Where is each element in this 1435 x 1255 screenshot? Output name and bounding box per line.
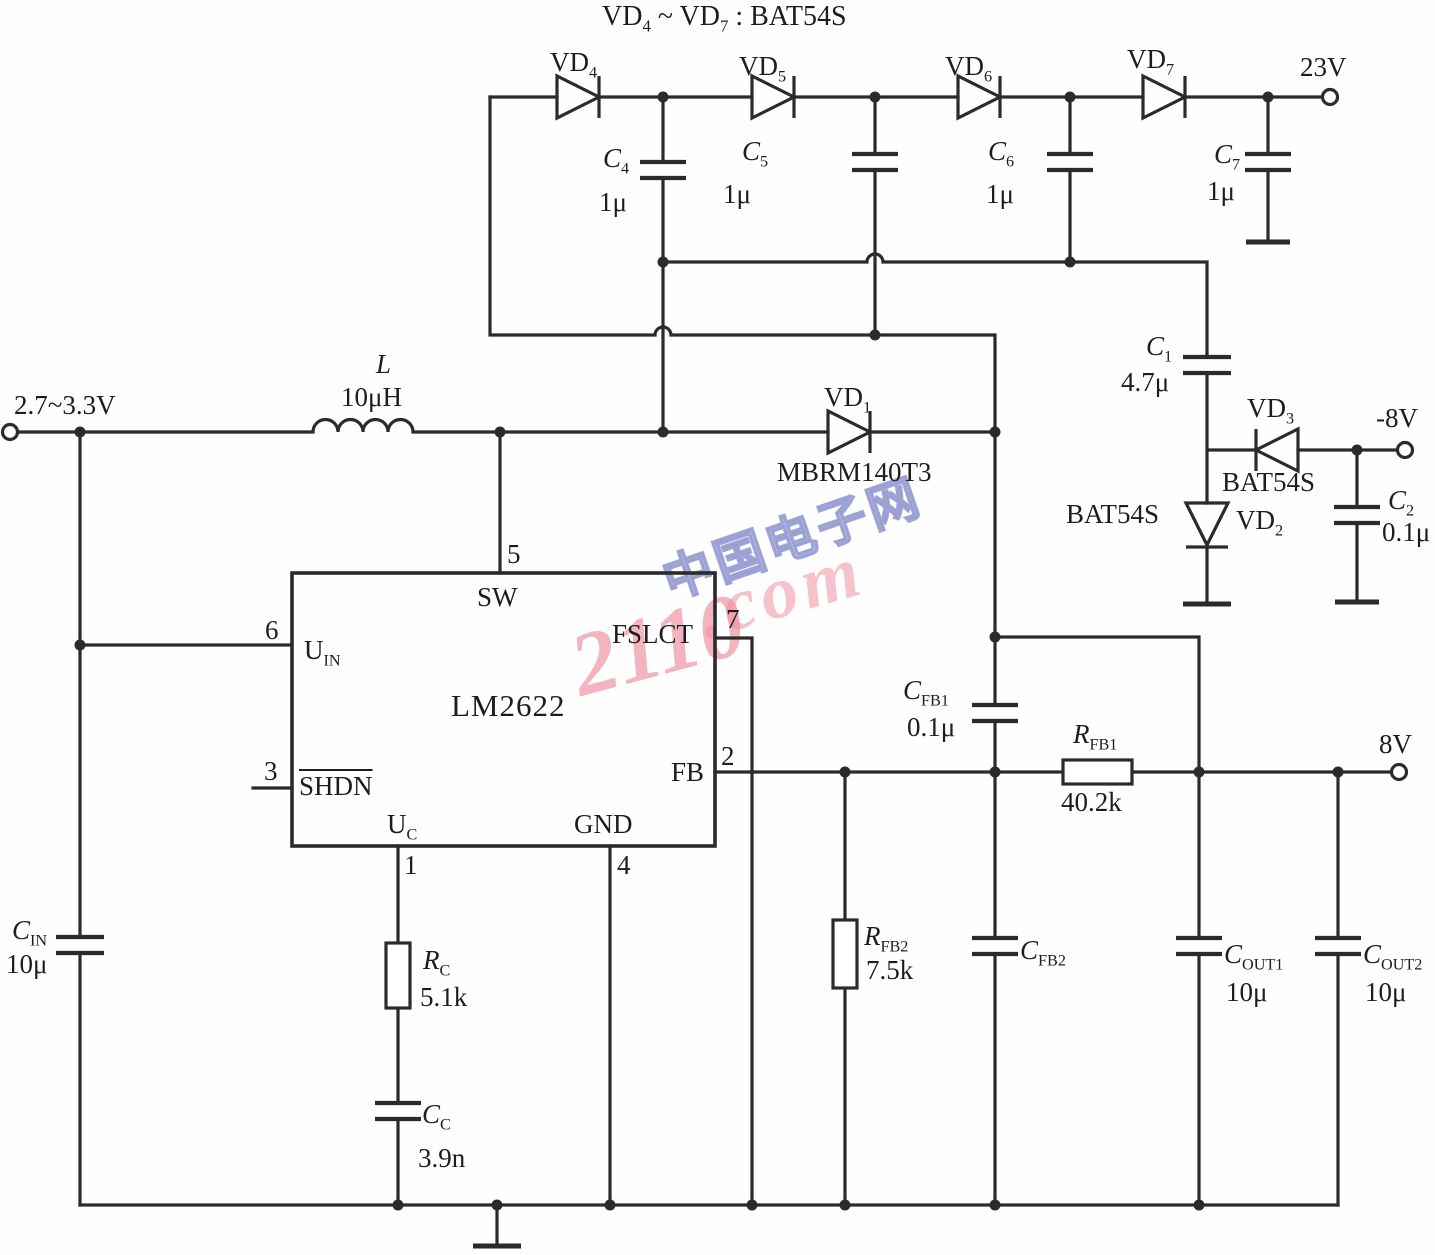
- cc-label: CC: [422, 1100, 451, 1128]
- vd2-part: BAT54S: [1066, 500, 1159, 528]
- cout2-label: COUT2: [1363, 940, 1422, 968]
- c5-label: C5: [742, 137, 768, 165]
- vd5-label: VD5: [739, 52, 786, 80]
- c5-value: 1μ: [723, 180, 751, 208]
- vd6-label: VD6: [945, 52, 992, 80]
- c4-value: 1μ: [599, 188, 627, 216]
- c6-label: C6: [988, 137, 1014, 165]
- cout2-value: 10μ: [1365, 978, 1406, 1006]
- terminal-neg8v-label: -8V: [1376, 404, 1418, 432]
- cout1-value: 10μ: [1226, 978, 1267, 1006]
- vd2-label: VD2: [1236, 506, 1283, 534]
- c7-value: 1μ: [1207, 177, 1235, 205]
- pin-sw-label: SW: [477, 583, 518, 611]
- wires: [17, 97, 1398, 1244]
- rfb1-label: RFB1: [1073, 720, 1117, 748]
- cfb2-label: CFB2: [1020, 936, 1066, 964]
- pin5-number: 5: [507, 540, 521, 568]
- terminal-23v-label: 23V: [1300, 53, 1347, 81]
- schematic-title: VD4 ~ VD7 : BAT54S: [602, 2, 847, 31]
- c2-label: C2: [1388, 486, 1414, 514]
- junction-dots: [75, 92, 1363, 1211]
- pin4-number: 4: [617, 851, 631, 879]
- vd1-label: VD1: [824, 383, 871, 411]
- pin1-number: 1: [404, 851, 418, 879]
- resistor-symbols: [386, 760, 1132, 1008]
- cout1-label: COUT1: [1224, 940, 1283, 968]
- ic-name: LM2622: [451, 690, 566, 723]
- pin-fb-label: FB: [671, 758, 704, 786]
- c4-label: C4: [603, 144, 629, 172]
- pin3-number: 3: [264, 757, 278, 785]
- c7-label: C7: [1214, 140, 1240, 168]
- vd3-part: BAT54S: [1222, 468, 1315, 496]
- inductor-value: 10μH: [341, 383, 402, 411]
- terminal-8v-label: 8V: [1379, 730, 1412, 758]
- inductor-label: L: [376, 350, 391, 378]
- rfb2-value: 7.5k: [866, 956, 913, 984]
- rc-label: RC: [423, 946, 450, 974]
- rfb2-label: RFB2: [864, 922, 908, 950]
- cc-value: 3.9n: [418, 1144, 465, 1172]
- inductor-coil: [313, 419, 413, 432]
- rc-value: 5.1k: [420, 983, 467, 1011]
- vd4-label: VD4: [550, 48, 597, 76]
- cin-label: CIN: [12, 916, 47, 944]
- vd7-label: VD7: [1127, 45, 1174, 73]
- pin6-number: 6: [265, 616, 279, 644]
- c1-value: 4.7μ: [1121, 368, 1169, 396]
- terminal-circles: [3, 90, 1413, 780]
- c1-label: C1: [1146, 332, 1172, 360]
- pin-fslct-label: FSLCT: [612, 620, 693, 648]
- pin-shdn-label: SHDN: [299, 772, 373, 800]
- cfb1-label: CFB1: [903, 676, 949, 704]
- c2-value: 0.1μ: [1382, 518, 1430, 546]
- cfb1-value: 0.1μ: [907, 713, 955, 741]
- pin-uc-label: UC: [387, 810, 417, 838]
- cin-value: 10μ: [6, 950, 47, 978]
- terminal-input-label: 2.7~3.3V: [14, 391, 116, 419]
- pin2-number: 2: [721, 742, 735, 770]
- circuit-schematic: 2110 .com 中国电子网: [0, 0, 1435, 1255]
- pin-gnd-label: GND: [574, 810, 633, 838]
- pin-uin-label: UIN: [304, 636, 341, 664]
- c6-value: 1μ: [986, 180, 1014, 208]
- pin7-number: 7: [726, 605, 740, 633]
- vd3-label: VD3: [1247, 394, 1294, 422]
- vd1-part: MBRM140T3: [777, 458, 932, 486]
- rfb1-value: 40.2k: [1061, 788, 1122, 816]
